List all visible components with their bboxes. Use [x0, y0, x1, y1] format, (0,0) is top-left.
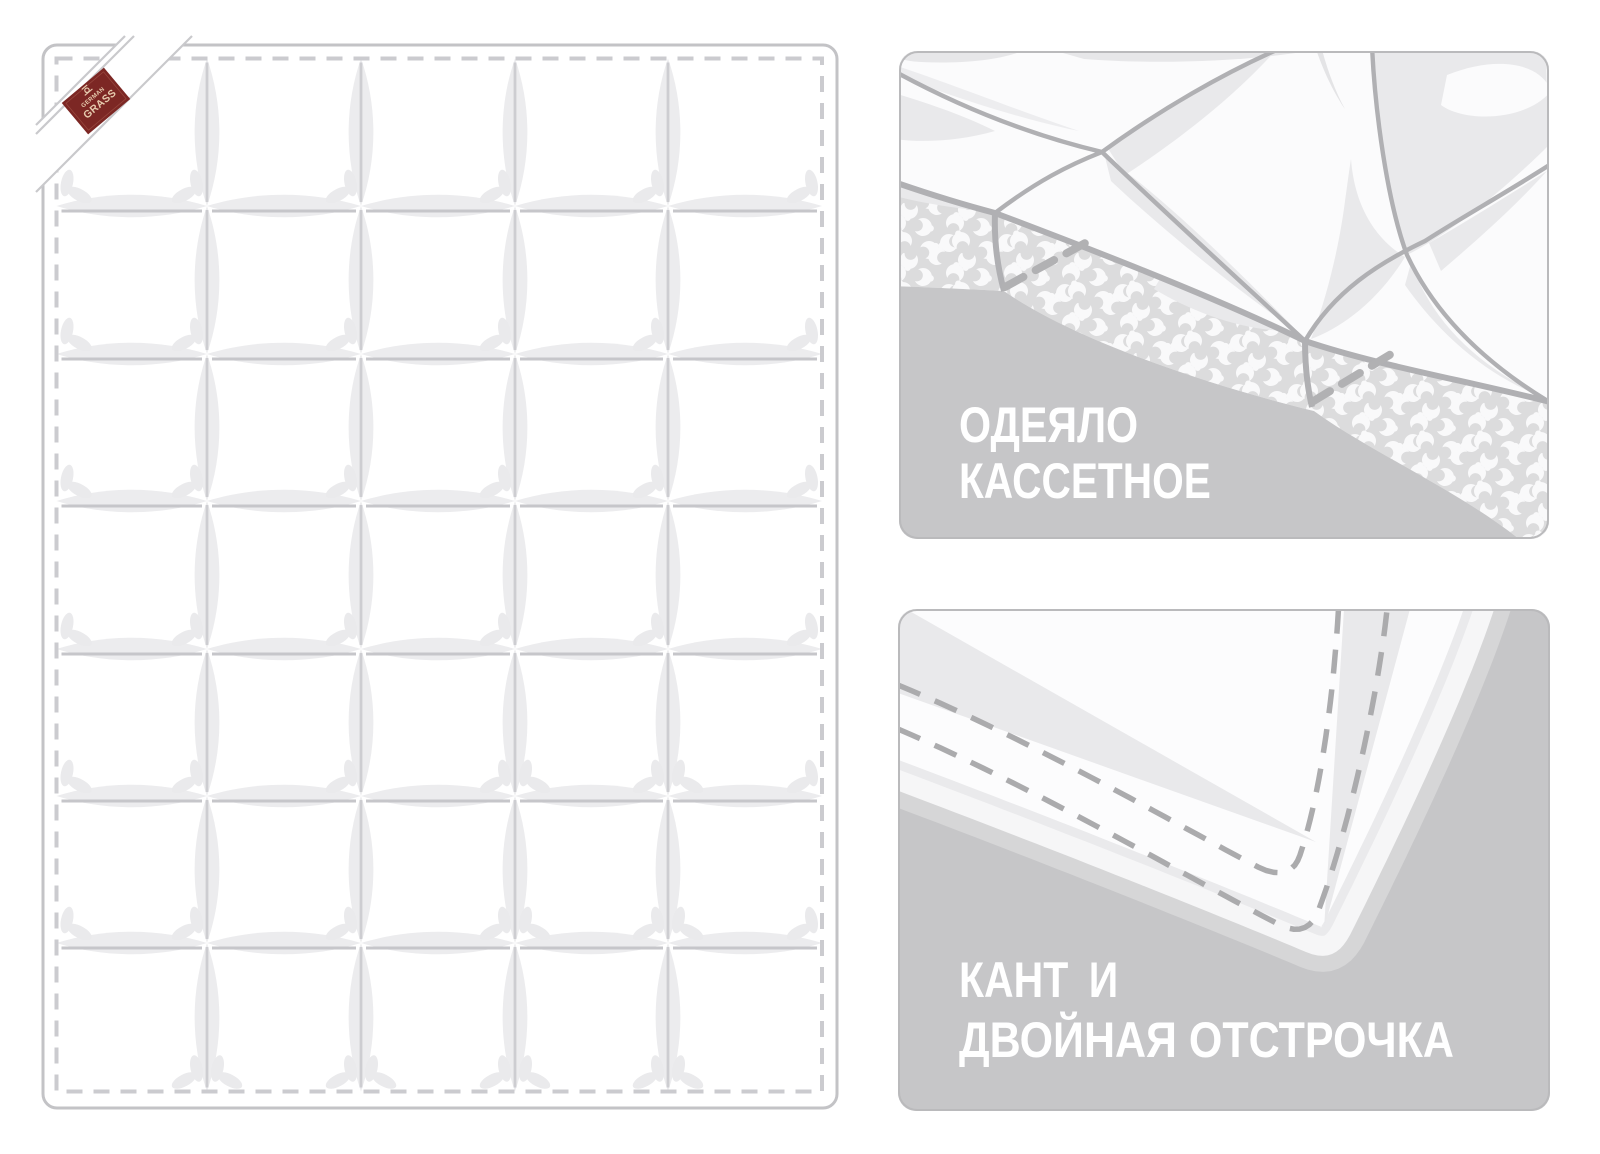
svg-text:КАССЕТНОЕ: КАССЕТНОЕ [959, 453, 1211, 509]
svg-text:ОДЕЯЛО: ОДЕЯЛО [959, 397, 1138, 453]
svg-text:ДВОЙНАЯ ОТСТРОЧКА: ДВОЙНАЯ ОТСТРОЧКА [959, 1012, 1454, 1068]
svg-text:КАНТ И: КАНТ И [959, 952, 1118, 1008]
